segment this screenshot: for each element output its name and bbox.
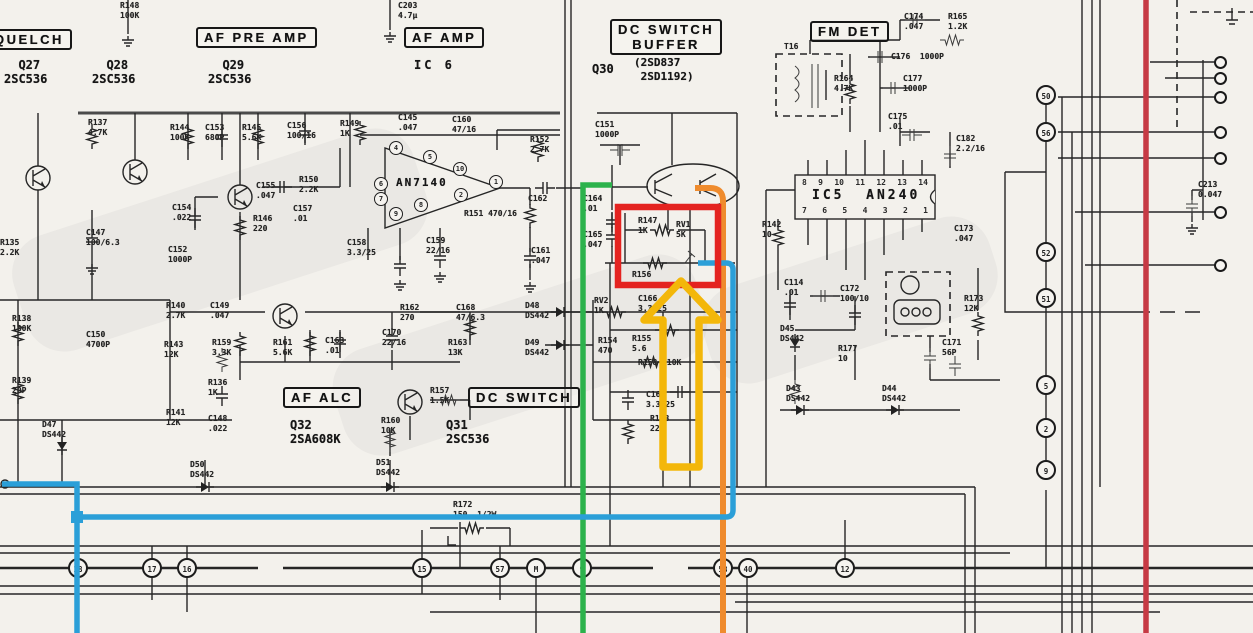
terminal-circle: 9: [572, 558, 592, 578]
terminal-circle: 50: [1036, 85, 1056, 105]
connector-pin: [1214, 126, 1227, 139]
schematic-page: QUELCH AF PRE AMP AF AMP DC SWITCH BUFFE…: [0, 0, 1253, 633]
terminal-circle: 15: [412, 558, 432, 578]
connector-pin: [1214, 56, 1227, 69]
terminal-circle: 51: [1036, 288, 1056, 308]
terminal-circle: 2: [1036, 418, 1056, 438]
opamp-pin-number: 9: [389, 207, 403, 221]
terminal-circle: 40: [738, 558, 758, 578]
terminal-circle: 16: [177, 558, 197, 578]
terminal-circle: 58: [713, 558, 733, 578]
terminal-circle: 52: [1036, 242, 1056, 262]
opamp-pin-number: 6: [374, 177, 388, 191]
terminal-circle: 56: [1036, 122, 1056, 142]
connector-pin: [1214, 259, 1227, 272]
connector-pin: [1214, 91, 1227, 104]
opamp-pin-number: 7: [374, 192, 388, 206]
terminal-circle: 9: [1036, 460, 1056, 480]
opamp-pin-number: 1: [489, 175, 503, 189]
opamp-pin-number: 2: [454, 188, 468, 202]
terminal-circle: 12: [835, 558, 855, 578]
terminal-circle: 18: [68, 558, 88, 578]
terminal-circle: M: [526, 558, 546, 578]
connector-pin: [1214, 72, 1227, 85]
connector-pin: [1214, 206, 1227, 219]
opamp-pin-number: 5: [423, 150, 437, 164]
opamp-pin-number: 8: [414, 198, 428, 212]
opamp-pin-number: 4: [389, 141, 403, 155]
terminal-circle: 5: [1036, 375, 1056, 395]
terminal-circle: 17: [142, 558, 162, 578]
connector-pin: [1214, 152, 1227, 165]
terminal-circle: 57: [490, 558, 510, 578]
opamp-pin-number: 10: [453, 162, 467, 176]
